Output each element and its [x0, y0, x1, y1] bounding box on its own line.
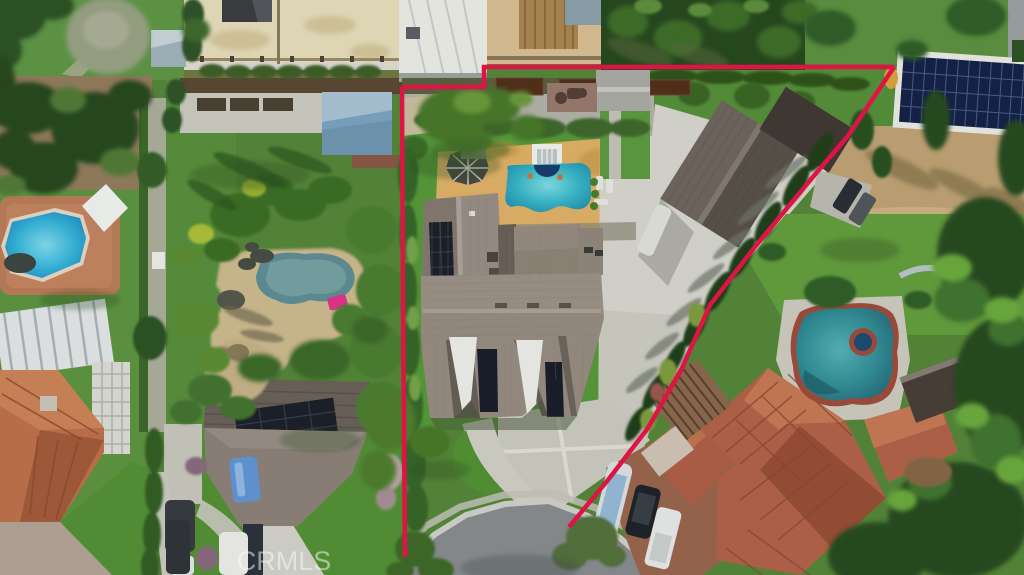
svg-text:CRMLS: CRMLS — [237, 546, 332, 575]
